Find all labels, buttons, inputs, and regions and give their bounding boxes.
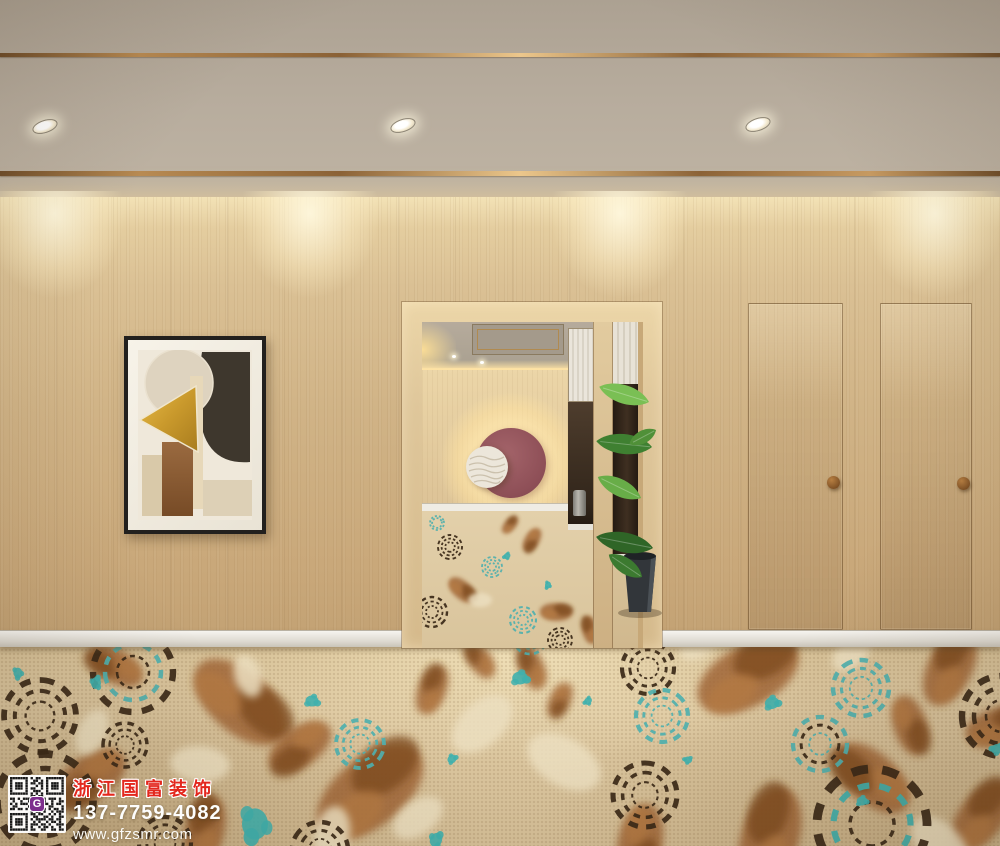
phone-number: 137-7759-4082 bbox=[73, 802, 222, 825]
brand-name: 浙江国富装饰 bbox=[73, 775, 222, 801]
hotel-corridor-render: G 浙江国富装饰 137-7759-4082 www.gfzsmr.com bbox=[0, 0, 1000, 846]
recessed-downlight bbox=[744, 114, 773, 134]
qr-logo-badge: G bbox=[29, 796, 45, 812]
corridor-baseboard bbox=[422, 503, 570, 511]
ceiling-gold-strip bbox=[0, 53, 1000, 57]
corridor-downlight bbox=[480, 361, 484, 364]
door-knob bbox=[957, 477, 970, 490]
recessed-downlight bbox=[389, 115, 418, 135]
corridor-downlight bbox=[452, 355, 456, 358]
ceiling-gold-strip bbox=[0, 171, 1000, 176]
concealed-door-1 bbox=[748, 303, 843, 630]
wave-relief-disc bbox=[465, 445, 509, 489]
artwork-canvas bbox=[138, 350, 252, 520]
plant-leaves bbox=[594, 378, 659, 584]
ceiling bbox=[0, 0, 1000, 200]
potted-plant bbox=[585, 360, 670, 625]
corridor-back-wall bbox=[422, 368, 570, 511]
framed-abstract-artwork bbox=[124, 336, 266, 534]
website-url: www.gfzsmr.com bbox=[73, 826, 222, 843]
concealed-door-2 bbox=[880, 303, 972, 630]
door-knob bbox=[827, 476, 840, 489]
ceiling-tray bbox=[472, 324, 564, 355]
watermark: G 浙江国富装饰 137-7759-4082 www.gfzsmr.com bbox=[8, 775, 222, 843]
qr-code: G bbox=[8, 775, 66, 833]
recessed-downlight bbox=[31, 116, 60, 136]
